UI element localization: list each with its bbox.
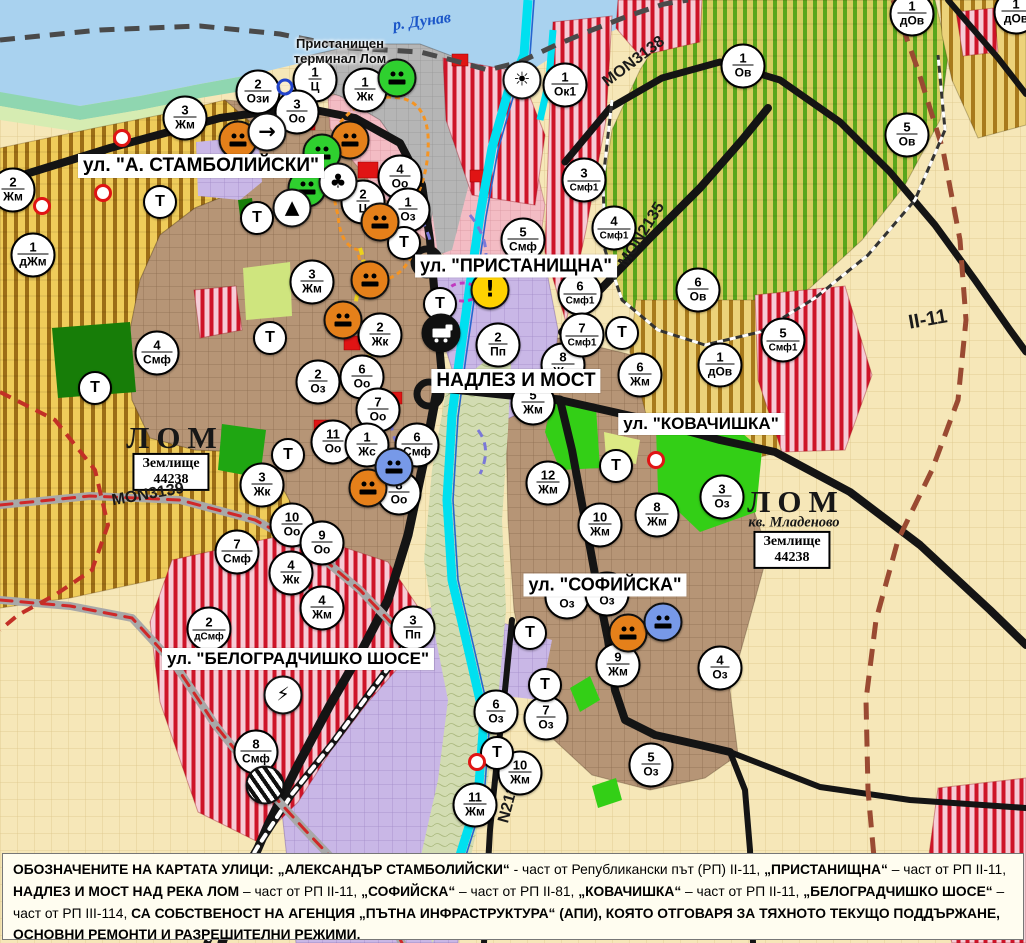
zone-marker: 2дСмф [187, 607, 232, 652]
t-marker: Т [253, 321, 287, 355]
monument-orange-icon [609, 614, 648, 653]
land-registry-box-east: Землище 44238 [753, 531, 830, 569]
caption-segment: „КОВАЧИШКА“ [578, 884, 681, 899]
monument-orange-icon [324, 301, 363, 340]
zone-marker: 2Оз [296, 360, 341, 405]
city-label-lom-west: ЛОМ [126, 420, 223, 456]
caption-segment: „БЕЛОГРАДЧИШКО ШОСЕ“ [803, 884, 993, 899]
quarter-label-mladenovo: кв. Младеново [748, 515, 839, 532]
poi-dot [113, 129, 131, 147]
street-label-stamboliyski: ул. "А. СТАМБОЛИЙСКИ" [78, 154, 324, 178]
t-marker: Т [513, 616, 547, 650]
zone-marker: 7Смф1 [560, 313, 605, 358]
t-marker: Т [78, 371, 112, 405]
zone-marker: 2Пп [476, 323, 521, 368]
caption-segment: - част от Републикански път (РП) II-11, [510, 862, 764, 877]
registry-line2: 44238 [763, 550, 820, 566]
caption-segment: НАДЛЕЗ И МОСТ НАД РЕКА ЛОМ [13, 884, 239, 899]
port-terminal-label: Пристанищен терминал Лом [294, 37, 386, 67]
monument-blue-icon [644, 603, 683, 642]
caption-segment: – част от РП II-11, [888, 862, 1006, 877]
map-overlay: р. Дунав Пристанищен терминал Лом ул. "А… [0, 0, 1026, 943]
street-label-sofiyska: ул. "СОФИЙСКА" [523, 574, 686, 597]
t-marker: Т [240, 201, 274, 235]
river-label: р. Дунав [392, 9, 452, 35]
zone-marker: 4Смф [135, 331, 180, 376]
poi-dot [468, 753, 486, 771]
street-label-kovachishka: ул. "КОВАЧИШКА" [618, 413, 784, 435]
monument-orange-icon [351, 261, 390, 300]
port-terminal-line2: терминал Лом [294, 52, 386, 67]
zone-marker: 3Пп [391, 606, 436, 651]
zone-marker: 2Жм [0, 168, 36, 213]
zone-marker: 10Жм [578, 503, 623, 548]
zone-marker: 5Смф1 [761, 318, 806, 363]
t-marker: Т [599, 449, 633, 483]
zone-marker: 4Смф1 [592, 206, 637, 251]
arrow-sign-icon: → [248, 113, 287, 152]
t-marker: Т [271, 438, 305, 472]
caption-segment: – част от РП II-11, [681, 884, 803, 899]
poi-dot [277, 79, 294, 96]
caption-segment: „ПРИСТАНИЩНА“ [764, 862, 888, 877]
caption-segment: „СОФИЙСКА“ [361, 884, 455, 899]
zone-marker: 2Жк [358, 313, 403, 358]
zone-marker: 1дОв [890, 0, 935, 37]
caption-segment: ОБОЗНАЧЕНИТЕ НА КАРТАТА УЛИЦИ: „АЛЕКСАНД… [13, 862, 510, 877]
registry-line1: Землище [763, 534, 820, 550]
zoning-map: р. Дунав Пристанищен терминал Лом ул. "А… [0, 0, 1026, 943]
zone-marker: 12Жм [526, 461, 571, 506]
zone-marker: 7Смф [215, 530, 260, 575]
zone-marker: 11Жм [453, 783, 498, 828]
caption-segment: – част от РП II-11, [239, 884, 361, 899]
t-marker: Т [528, 668, 562, 702]
zone-marker: 1дОв [994, 0, 1026, 35]
monument-orange-icon [361, 203, 400, 242]
zone-marker: 3Оз [700, 475, 745, 520]
fan-sign-icon: ☀ [503, 61, 542, 100]
road-label-mon3138: MON3138 [599, 33, 668, 91]
t-marker: Т [143, 185, 177, 219]
road-label-ii-11: II-11 [907, 305, 949, 334]
zone-marker: 1дОв [698, 343, 743, 388]
caption: ОБОЗНАЧЕНИТЕ НА КАРТАТА УЛИЦИ: „АЛЕКСАНД… [2, 853, 1024, 940]
zone-marker: 3Жм [290, 260, 335, 305]
zone-marker: 4Жм [300, 586, 345, 631]
lightning-sign-icon: ⚡ [264, 676, 303, 715]
t-marker: Т [605, 316, 639, 350]
poi-dot [94, 184, 112, 202]
poi-dot [647, 451, 665, 469]
zone-marker: 3Смф1 [562, 158, 607, 203]
zone-marker: 3Жм [163, 96, 208, 141]
zone-marker: 6Ов [676, 268, 721, 313]
zone-marker: 8Жм [635, 493, 680, 538]
registry-line1: Землище [142, 456, 199, 472]
zone-marker: 1Ов [721, 44, 766, 89]
zone-marker: 6Оз [474, 690, 519, 735]
monument-blue-icon [375, 448, 414, 487]
truck-sign-icon [422, 314, 461, 353]
poi-dot [33, 197, 51, 215]
zone-marker: 1дЖм [11, 233, 56, 278]
zone-marker: 7Оз [524, 696, 569, 741]
caption-segment: – част от РП II-81, [455, 884, 578, 899]
zone-marker: 5Ов [885, 113, 930, 158]
caption-segment: СА СОБСТВЕНОСТ НА АГЕНЦИЯ „ПЪТНА ИНФРАСТ… [13, 906, 1000, 943]
zone-marker: 4Оз [698, 646, 743, 691]
pyramid-sign-icon: ▲ [273, 189, 312, 228]
port-terminal-line1: Пристанищен [294, 37, 386, 52]
club-sign-icon: ♣ [319, 163, 358, 202]
street-label-pristanishtna: ул. "ПРИСТАНИЩНА" [415, 255, 617, 278]
zone-marker: 6Жм [618, 353, 663, 398]
street-label-belogradchishko: ул. "БЕЛОГРАДЧИШКО ШОСЕ" [162, 648, 434, 670]
zone-marker: 4Жк [269, 551, 314, 596]
rail-crossing-icon [246, 766, 285, 805]
zone-marker: 5Оз [629, 743, 674, 788]
zone-marker: 1Ок1 [543, 63, 588, 108]
street-label-nadlez-most: НАДЛЕЗ И МОСТ [431, 369, 600, 393]
